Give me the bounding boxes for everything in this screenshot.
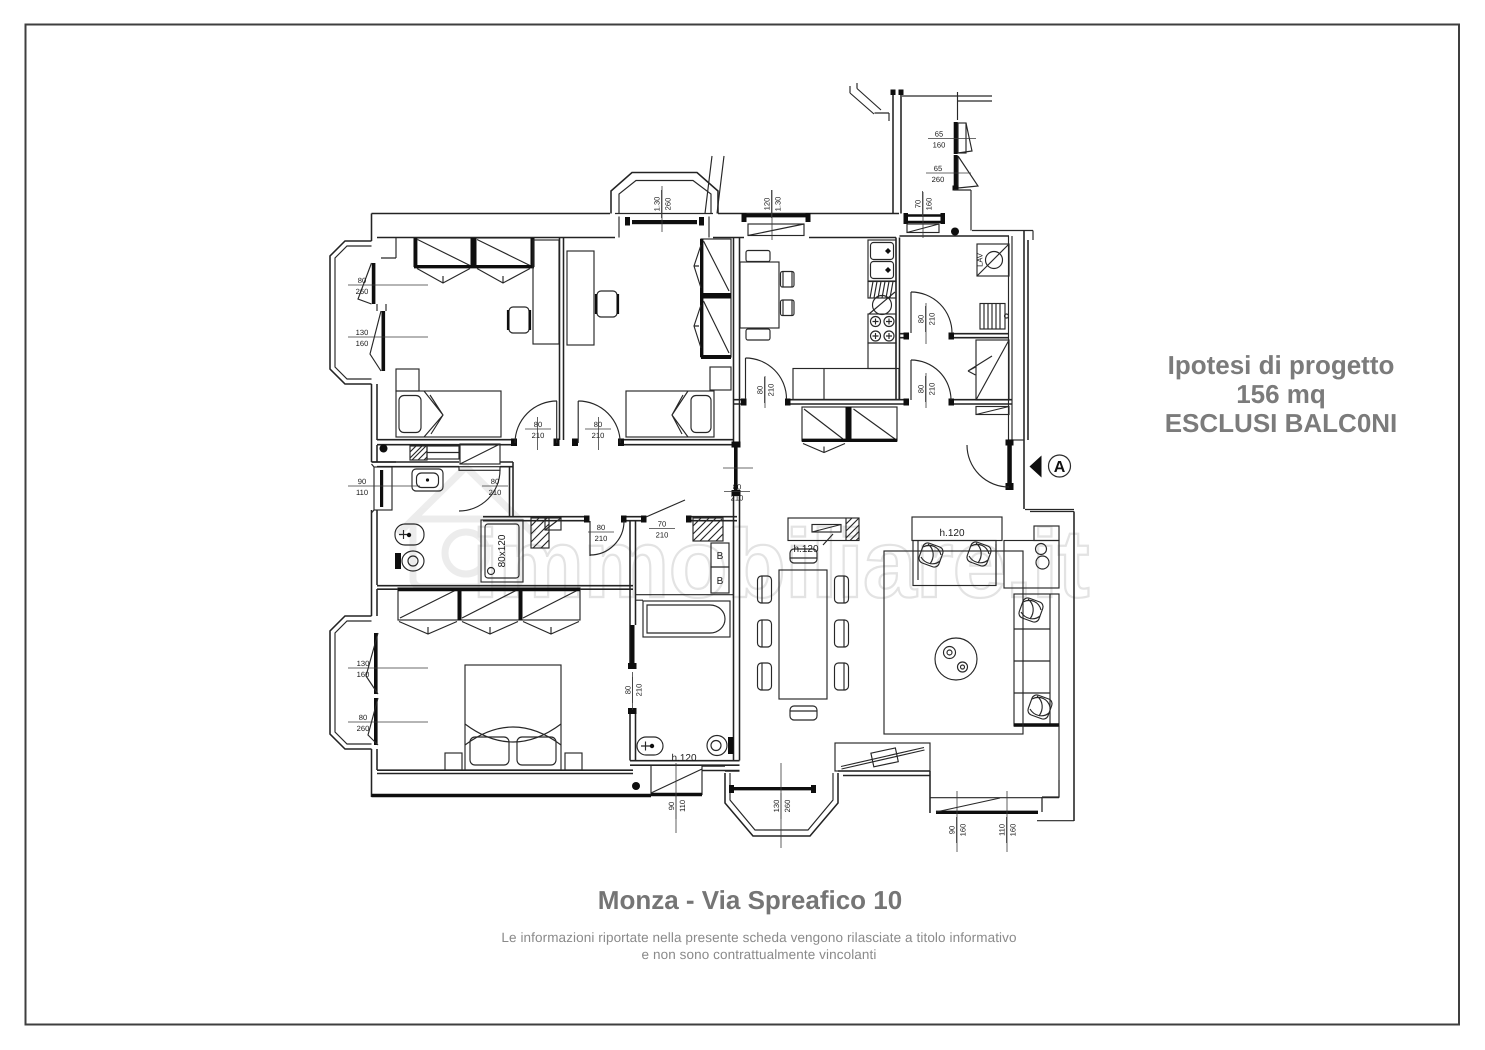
svg-text:90: 90 [667, 802, 676, 810]
svg-text:h.120: h.120 [793, 544, 818, 555]
svg-text:80: 80 [733, 483, 741, 492]
svg-text:65: 65 [935, 130, 943, 139]
svg-text:h.120: h.120 [939, 528, 964, 539]
svg-text:80: 80 [534, 420, 542, 429]
svg-text:210: 210 [731, 494, 744, 503]
svg-text:156 mq: 156 mq [1236, 379, 1326, 409]
svg-text:260: 260 [932, 175, 945, 184]
svg-text:65: 65 [934, 164, 942, 173]
svg-text:260: 260 [664, 198, 673, 211]
svg-text:160: 160 [933, 141, 946, 150]
svg-text:80: 80 [756, 386, 765, 394]
svg-text:110: 110 [356, 488, 368, 497]
svg-text:B: B [717, 576, 724, 587]
svg-text:80: 80 [917, 315, 926, 323]
svg-text:110: 110 [678, 800, 687, 812]
svg-text:210: 210 [532, 431, 545, 440]
svg-text:210: 210 [767, 384, 776, 397]
svg-text:70: 70 [914, 200, 923, 208]
svg-text:70: 70 [658, 520, 666, 529]
svg-text:80: 80 [624, 686, 633, 694]
svg-text:160: 160 [1009, 824, 1018, 837]
svg-text:A: A [1054, 459, 1066, 476]
svg-text:80: 80 [359, 713, 367, 722]
svg-text:e non sono contrattualmente vi: e non sono contrattualmente vincolanti [642, 947, 877, 962]
svg-text:210: 210 [489, 488, 502, 497]
svg-text:210: 210 [592, 431, 605, 440]
svg-text:Le informazioni riportate nell: Le informazioni riportate nella presente… [501, 930, 1016, 945]
svg-text:210: 210 [928, 313, 937, 326]
svg-text:80: 80 [597, 523, 605, 532]
svg-text:80: 80 [594, 420, 602, 429]
svg-text:160: 160 [356, 339, 369, 348]
svg-text:260: 260 [357, 724, 370, 733]
svg-text:110: 110 [998, 824, 1007, 836]
svg-text:80: 80 [358, 276, 366, 285]
svg-text:130: 130 [772, 800, 781, 813]
svg-text:LAV: LAV [976, 252, 985, 267]
svg-text:80x120: 80x120 [497, 534, 508, 567]
svg-text:210: 210 [928, 383, 937, 396]
svg-text:130: 130 [357, 659, 370, 668]
svg-text:160: 160 [357, 670, 370, 679]
svg-text:B: B [717, 551, 724, 562]
svg-text:ESCLUSI BALC0NI: ESCLUSI BALC0NI [1165, 408, 1398, 438]
svg-text:Monza - Via Spreafico 10: Monza - Via Spreafico 10 [598, 885, 902, 915]
svg-text:120: 120 [763, 198, 772, 211]
svg-text:90: 90 [948, 826, 957, 834]
svg-text:90: 90 [358, 477, 366, 486]
svg-text:210: 210 [656, 531, 669, 540]
svg-text:160: 160 [959, 824, 968, 837]
svg-text:130: 130 [356, 328, 369, 337]
svg-text:210: 210 [635, 684, 644, 697]
svg-text:260: 260 [356, 287, 369, 296]
svg-text:260: 260 [783, 800, 792, 813]
svg-text:Ipotesi di progetto: Ipotesi di progetto [1168, 350, 1395, 380]
svg-text:immobiliare.it: immobiliare.it [472, 509, 1089, 618]
svg-text:80: 80 [917, 385, 926, 393]
svg-text:80: 80 [491, 477, 499, 486]
svg-text:1.30: 1.30 [653, 197, 662, 212]
svg-text:1.30: 1.30 [774, 197, 783, 212]
svg-text:210: 210 [595, 534, 608, 543]
svg-text:160: 160 [925, 198, 934, 211]
svg-text:h.120: h.120 [671, 753, 696, 764]
